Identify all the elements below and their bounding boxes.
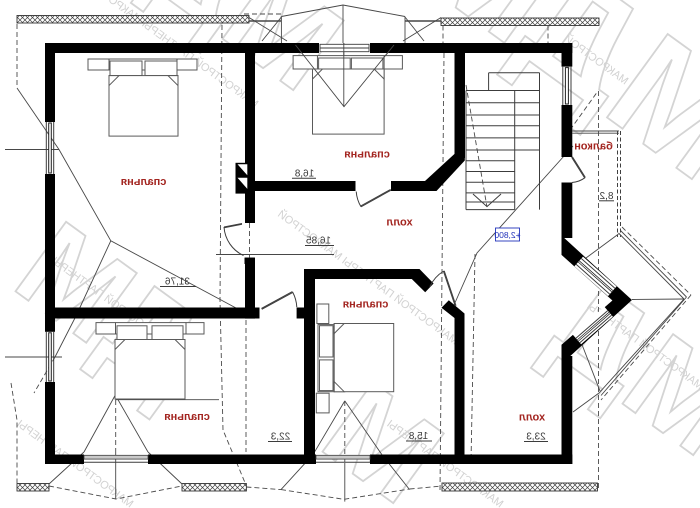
svg-text:спальня: спальня xyxy=(164,411,210,423)
svg-text:балкон: балкон xyxy=(574,141,613,153)
svg-text:холл: холл xyxy=(519,412,545,424)
svg-text:31,76: 31,76 xyxy=(165,277,190,288)
svg-text:23,3: 23,3 xyxy=(526,432,546,443)
svg-text:22,3: 22,3 xyxy=(270,432,290,443)
svg-text:16,85: 16,85 xyxy=(306,236,331,247)
svg-text:спальня: спальня xyxy=(344,149,390,161)
svg-text:спальня: спальня xyxy=(343,299,389,311)
svg-text:холл: холл xyxy=(386,217,412,229)
svg-text:+2,800: +2,800 xyxy=(494,230,521,240)
svg-text:15,8: 15,8 xyxy=(408,431,428,442)
svg-text:спальня: спальня xyxy=(121,176,167,188)
